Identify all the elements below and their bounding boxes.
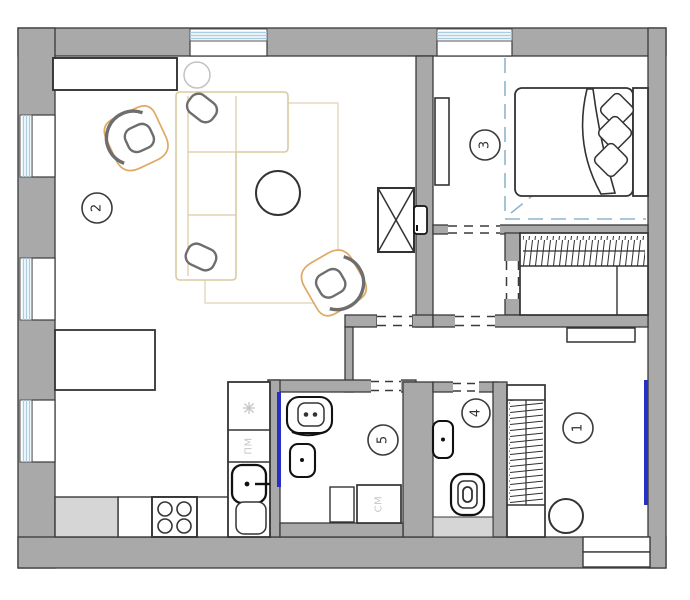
living-vestibule-opening (377, 314, 412, 328)
ventilation-shaft (378, 188, 414, 252)
window-left-1 (20, 115, 55, 177)
room-1-badge: 1 (563, 413, 593, 443)
room-2-badge: 2 (82, 193, 112, 223)
bathroom-5: СМ 5 (277, 392, 401, 523)
bedroom-door-opening (448, 224, 500, 236)
wall-bottom (18, 537, 666, 568)
living-room: 2 (53, 58, 373, 321)
sink-icon (290, 444, 315, 477)
wall-living-bedroom (416, 56, 433, 327)
wc-4: 4 (433, 399, 493, 537)
entrance-threshold (583, 537, 650, 567)
dining-table (55, 330, 155, 390)
kitchen-base-cabinet (236, 502, 266, 534)
floor-lamp (184, 62, 210, 88)
wardrobe-side (507, 385, 545, 537)
dining-area (55, 330, 155, 390)
pocket-door (414, 206, 427, 234)
washing-machine: СМ (357, 485, 401, 523)
kitchen-tall-unit: ПМ (228, 382, 270, 537)
toilet-icon (451, 474, 484, 515)
washing-machine-label: СМ (374, 496, 385, 513)
wc-floor-strip (433, 517, 493, 537)
window-top-living (190, 29, 267, 56)
pouf (549, 499, 583, 533)
stove-icon (152, 497, 197, 537)
room-5-badge: 5 (368, 425, 398, 455)
wall-mid-left-b (412, 315, 433, 327)
snowflake-icon (243, 402, 255, 414)
window-left-3 (20, 400, 55, 462)
window-top-bedroom (437, 29, 512, 56)
room-4-label: 4 (469, 409, 484, 417)
wall-mid-left-a (345, 315, 377, 327)
kitchen-sink-icon (232, 465, 270, 503)
wall-top (18, 28, 666, 56)
room-2-label: 2 (90, 204, 105, 212)
room-1-label: 1 (571, 424, 586, 432)
kitchen: ПМ (55, 382, 270, 537)
bath-cabinet (330, 487, 354, 522)
wardrobe-door-opening (504, 261, 521, 299)
hall-wardrobe (520, 233, 648, 315)
toilet-icon (287, 397, 332, 435)
room-3-label: 3 (478, 141, 493, 149)
radiator-accent (644, 380, 648, 505)
hall-room1-opening (455, 314, 495, 328)
bathroom-door-opening (371, 379, 401, 393)
kitchen-cabinet-gray (55, 497, 118, 537)
wall-shelf (567, 328, 635, 342)
window-left-2 (20, 258, 55, 320)
wc-door-opening (453, 381, 479, 393)
bedroom-3: 3 (435, 58, 648, 219)
dishwasher-label: ПМ (244, 437, 255, 454)
wall-bath-bottom-strip (280, 523, 403, 537)
room-4-badge: 4 (462, 399, 490, 427)
towel-rail-accent (277, 392, 281, 487)
room-3-badge: 3 (470, 130, 500, 160)
wall-right (648, 28, 666, 568)
wall-bath-right-block (403, 382, 433, 537)
sink-icon (433, 421, 453, 458)
coffee-table (256, 171, 300, 215)
armchair (98, 101, 174, 177)
wall-wc-room1 (493, 382, 507, 537)
bed (515, 88, 648, 196)
closet (53, 58, 177, 90)
room-1: 1 (507, 328, 648, 537)
floor-plan: 2 (0, 0, 690, 600)
headboard (633, 88, 648, 196)
bedroom-console (435, 98, 449, 185)
armchair (296, 243, 374, 321)
room-5-label: 5 (376, 436, 391, 444)
floor-plan-drawing: 2 (0, 0, 690, 600)
